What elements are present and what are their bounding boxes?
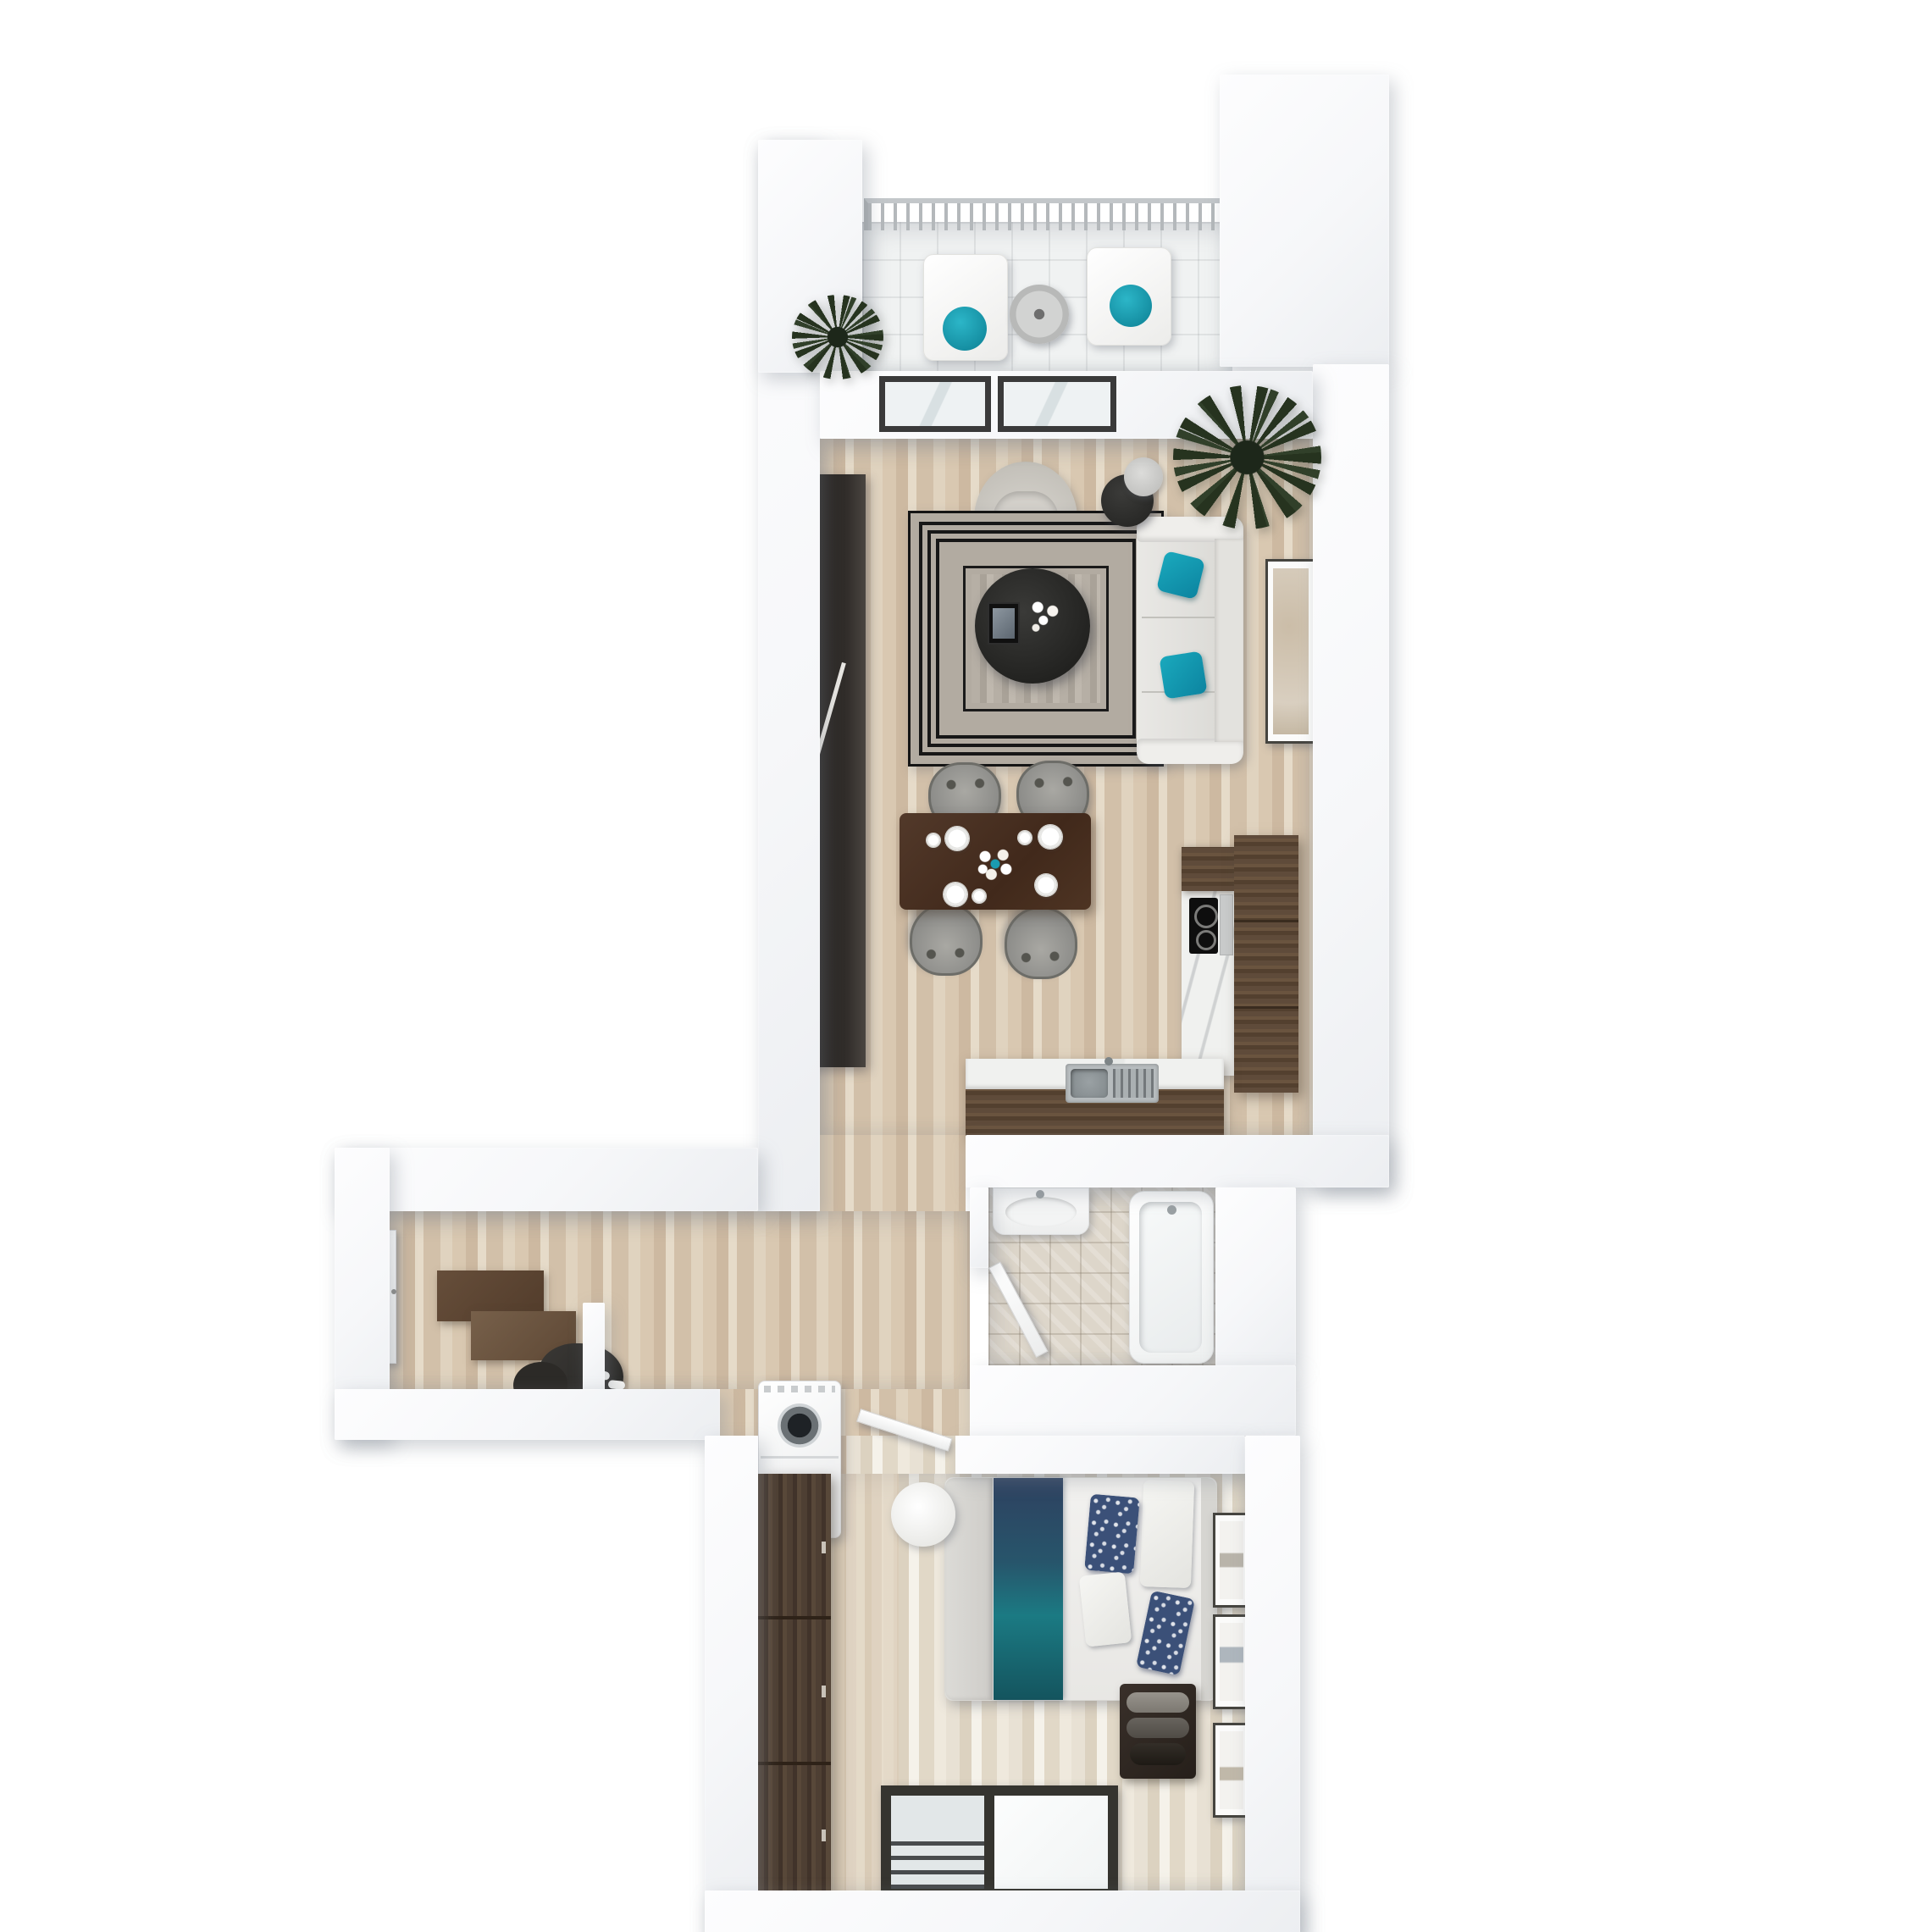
sofa-armrest-bottom <box>1137 739 1243 764</box>
wall-art-print-1 <box>1220 1521 1243 1599</box>
wall-bedroom-right <box>1245 1436 1300 1932</box>
tray-photo <box>993 608 1015 639</box>
flower-centerpiece <box>976 845 1015 883</box>
wall-right-upper <box>1313 364 1389 1187</box>
place-setting-side-plate-3 <box>972 889 986 903</box>
kitchen-sink <box>1066 1064 1159 1103</box>
sofa-backrest <box>1215 539 1243 742</box>
wardrobe <box>758 1474 831 1906</box>
art-frame-print <box>1273 568 1309 734</box>
place-setting-side-plate-2 <box>1018 831 1032 844</box>
dining-chair-bottom-right <box>1005 906 1077 979</box>
washer-control-panel <box>764 1386 835 1392</box>
lounge-chair-2-cushion <box>1110 285 1152 327</box>
bathtub-basin <box>1139 1202 1202 1353</box>
blanket-roll-2 <box>1127 1718 1189 1738</box>
lounge-chair-1-cushion <box>943 307 987 351</box>
sliding-glass-door-2 <box>998 376 1116 432</box>
table-lamp <box>1124 457 1163 496</box>
wall-hall-bottom <box>335 1389 720 1440</box>
cooktop-burner-2 <box>1196 930 1216 950</box>
washbasin <box>993 1187 1089 1235</box>
kitchen-tall-cabinet <box>1234 835 1298 1093</box>
blanket-roll-3 <box>1130 1743 1186 1765</box>
corner-palm-plant <box>1173 385 1321 529</box>
patio-table <box>1010 285 1069 344</box>
sliding-glass-door-1 <box>879 376 991 432</box>
leaning-art-frame <box>1265 559 1316 744</box>
sofa-pillow-2 <box>1159 650 1207 699</box>
glass-2 <box>1004 382 1110 426</box>
balcony-railing <box>864 198 1228 230</box>
wall-art-print-2 <box>1220 1623 1243 1701</box>
place-setting-plate-1 <box>945 827 969 850</box>
white-bolster-pillow <box>1140 1480 1194 1588</box>
bathtub-faucet <box>1167 1205 1176 1215</box>
washer-lid <box>778 1403 822 1448</box>
storage-bench <box>1120 1684 1196 1779</box>
bedside-round-table <box>891 1482 955 1547</box>
navy-pillow-1 <box>1084 1494 1140 1575</box>
place-setting-plate-4 <box>1035 874 1057 896</box>
cabinet-seam-1 <box>1234 920 1298 922</box>
sofa <box>1137 517 1243 764</box>
window-pane-left <box>891 1796 984 1889</box>
wardrobe-handle-2 <box>822 1686 826 1697</box>
cabinet-seam-2 <box>1234 1006 1298 1009</box>
glass-1 <box>885 382 985 426</box>
sink-faucet <box>1104 1057 1113 1066</box>
cooktop-burner-1 <box>1194 905 1218 928</box>
wardrobe-seam-1 <box>758 1616 831 1619</box>
bathtub <box>1129 1191 1214 1364</box>
sink-drainer <box>1113 1069 1154 1098</box>
dining-chair-bottom-left <box>910 903 983 976</box>
floor-plan-scene <box>0 0 1932 1932</box>
partition-stub-wall <box>583 1303 605 1392</box>
place-setting-plate-3 <box>944 883 967 906</box>
balcony-plant <box>792 295 883 379</box>
wall-art-print-3 <box>1220 1731 1243 1809</box>
window-pane-right <box>994 1796 1108 1889</box>
wardrobe-handle-1 <box>822 1542 826 1553</box>
juliet-railing <box>891 1840 984 1889</box>
flower-bouquet <box>1027 598 1064 635</box>
french-window <box>881 1785 1118 1899</box>
passage-floor <box>820 1135 966 1211</box>
washbasin-bowl <box>1005 1197 1077 1227</box>
sink-basin <box>1071 1069 1108 1098</box>
bed-runner <box>994 1478 1063 1700</box>
wall-under-kitchen <box>966 1135 1389 1187</box>
kitchen-upper-dark-cabinet <box>1182 847 1234 891</box>
place-setting-side-plate-1 <box>927 833 940 847</box>
place-setting-plate-2 <box>1038 825 1062 849</box>
wall-hall-top <box>335 1148 758 1211</box>
cutting-board <box>1220 894 1233 955</box>
washer-seam <box>761 1456 839 1459</box>
wall-bedroom-top <box>955 1436 1245 1474</box>
wall-bedroom-left <box>705 1436 758 1932</box>
wardrobe-seam-2 <box>758 1762 831 1765</box>
wall-top-right-block <box>1220 75 1389 367</box>
cooktop <box>1189 898 1218 954</box>
wall-bedroom-bottom <box>705 1890 1300 1932</box>
white-pillow-1 <box>1079 1571 1132 1647</box>
wall-bathroom-bottom <box>970 1365 1296 1436</box>
sofa-seam-1 <box>1142 617 1215 618</box>
wardrobe-handle-3 <box>822 1830 826 1841</box>
wall-bathroom-right <box>1215 1187 1296 1365</box>
blanket-roll-1 <box>1127 1692 1189 1713</box>
wall-bathroom-left <box>970 1187 988 1268</box>
decor-tray <box>988 602 1020 645</box>
washbasin-faucet <box>1036 1190 1044 1199</box>
entry-door-handle <box>391 1289 396 1294</box>
